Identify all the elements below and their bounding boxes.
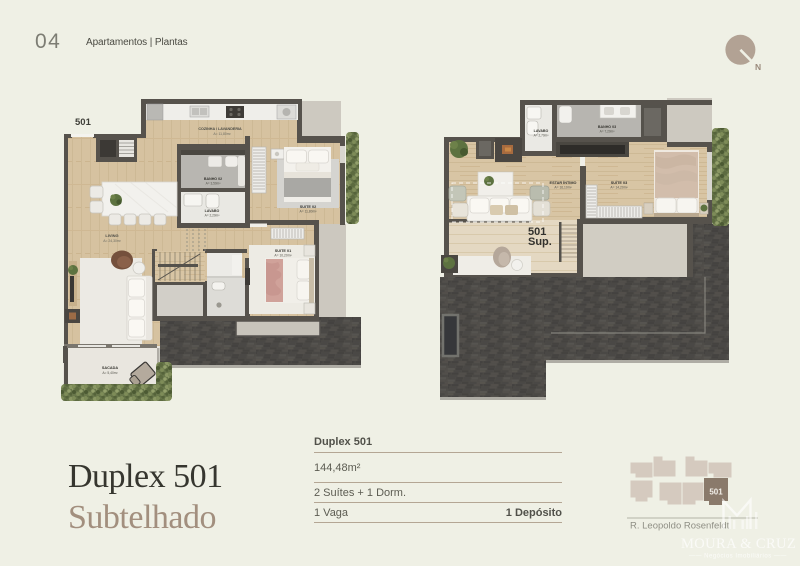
svg-text:BANHO 02: BANHO 02 [204,177,222,181]
svg-text:MOURA & CRUZ: MOURA & CRUZ [681,536,796,552]
svg-text:SUITE 01: SUITE 01 [275,249,291,253]
svg-text:A= 11,80m²: A= 11,80m² [300,210,318,214]
svg-text:501: 501 [75,117,92,128]
svg-text:R. Leopoldo Rosenfeldt: R. Leopoldo Rosenfeldt [630,521,730,532]
svg-text:SUITE 02: SUITE 02 [300,205,316,209]
svg-text:LAVABO: LAVABO [534,129,549,133]
svg-text:SUÍTE 03: SUÍTE 03 [611,180,627,185]
svg-text:A= 16,10m²: A= 16,10m² [554,186,572,190]
svg-text:A= 10,20m²: A= 10,20m² [274,254,292,258]
svg-text:A= 7,20m²: A= 7,20m² [600,130,615,134]
svg-text:A= 5,40m²: A= 5,40m² [102,371,118,375]
svg-text:A= 14,20m²: A= 14,20m² [610,186,628,190]
svg-text:501: 501 [709,488,723,497]
svg-text:A= 24,30m²: A= 24,30m² [103,239,121,243]
svg-text:A= 11,80m²: A= 11,80m² [213,132,231,136]
svg-text:A= 2,20m²: A= 2,20m² [205,214,220,218]
svg-text:LIVING: LIVING [105,233,118,238]
svg-text:A= 2,70m²: A= 2,70m² [534,134,549,138]
svg-text:Sup.: Sup. [528,236,552,248]
svg-text:ESTAR ÍNTIMO: ESTAR ÍNTIMO [550,180,577,185]
svg-text:A= 3,50m²: A= 3,50m² [206,182,221,186]
svg-text:COZINHA / LAVANDERIA: COZINHA / LAVANDERIA [198,127,242,131]
svg-text:BANHO 03: BANHO 03 [598,125,616,129]
svg-text:SACADA: SACADA [102,366,119,370]
svg-text:—— Negócios Imobiliários ——: —— Negócios Imobiliários —— [689,554,787,560]
svg-text:LAVABO: LAVABO [205,209,220,213]
